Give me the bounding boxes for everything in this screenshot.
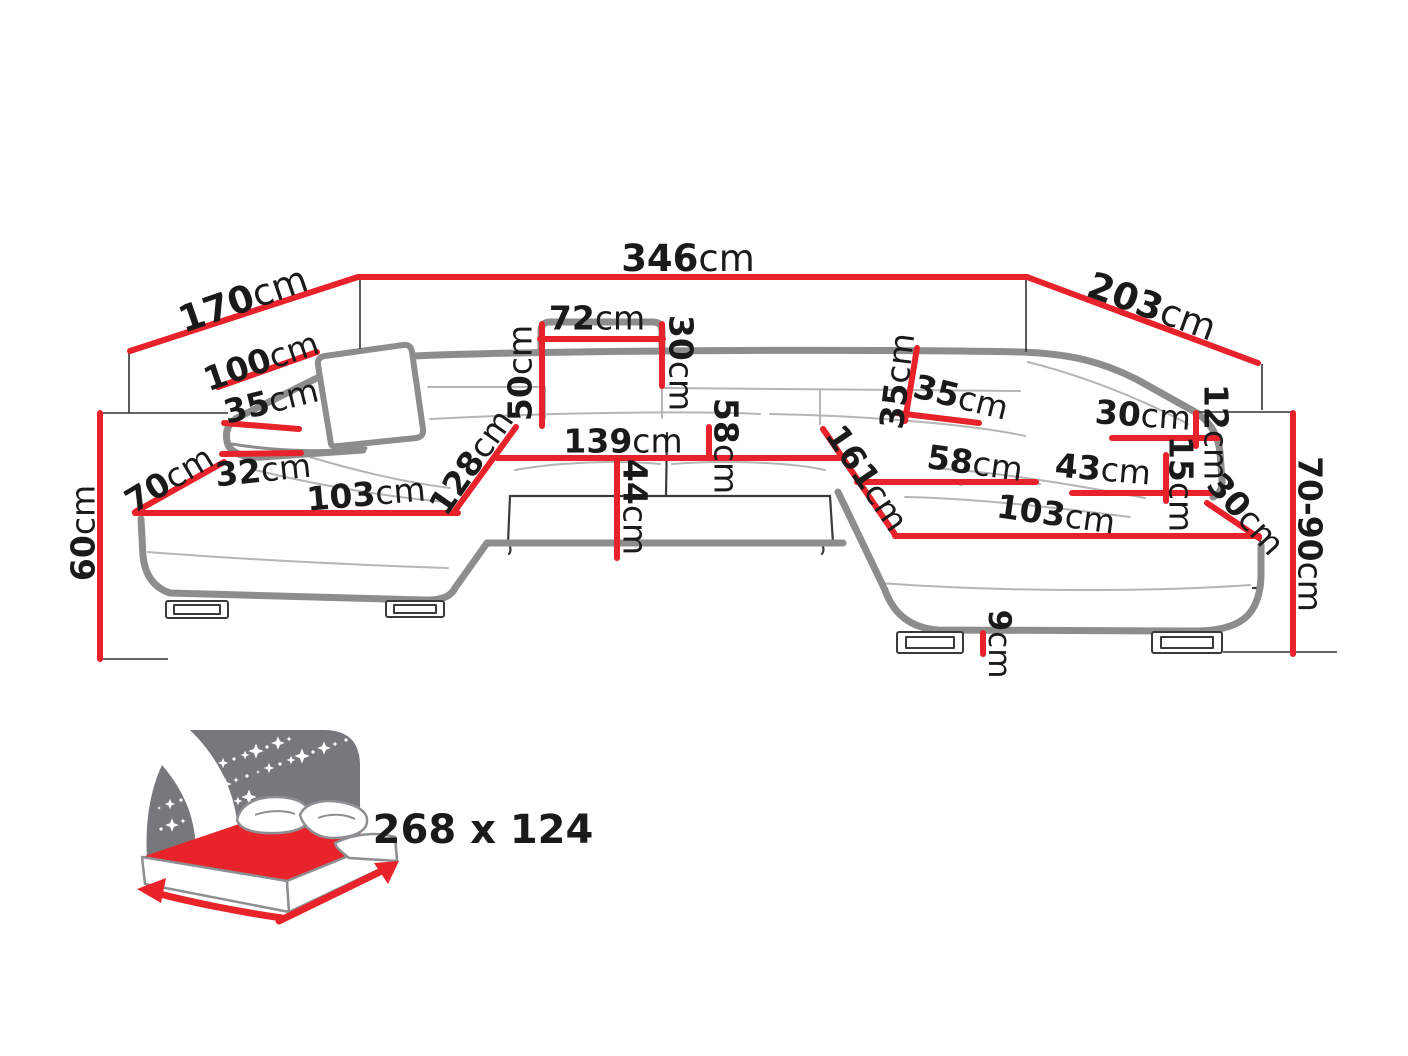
dim-label-60: 60cm [64, 485, 103, 581]
sofa-left-chaise [141, 519, 487, 600]
dim-label-203: 203cm [1082, 263, 1222, 349]
sofa-pillow [318, 345, 423, 446]
dim-label-70: 70cm [118, 438, 221, 521]
dim-label-70-90: 70-90cm [1290, 456, 1329, 612]
dim-label-58-center: 58cm [706, 398, 745, 494]
dim-label-72: 72cm [549, 299, 645, 338]
dim-label-44: 44cm [615, 459, 654, 555]
dim-label-30-back: 30cm [661, 315, 700, 411]
dim-label-139: 139cm [563, 422, 682, 461]
dim-label-9: 9cm [981, 610, 1017, 679]
sleeping-area-icon: 268 x 124 [137, 730, 593, 921]
dim-label-50: 50cm [501, 325, 540, 421]
sleeping-area-size: 268 x 124 [373, 807, 594, 853]
dim-label-15: 15cm [1161, 436, 1200, 532]
dim-label-30-right-arm: 30cm [1094, 392, 1193, 438]
dim-label-30-right-corner: 30cm [1199, 465, 1292, 563]
dim-label-43: 43cm [1053, 445, 1152, 492]
dimension-diagram: 346cm 170cm 203cm 100cm 35cm 70cm 32cm 1… [0, 0, 1408, 1056]
diagram-canvas: 346cm 170cm 203cm 100cm 35cm 70cm 32cm 1… [0, 0, 1408, 1056]
dim-label-346: 346cm [621, 237, 755, 280]
